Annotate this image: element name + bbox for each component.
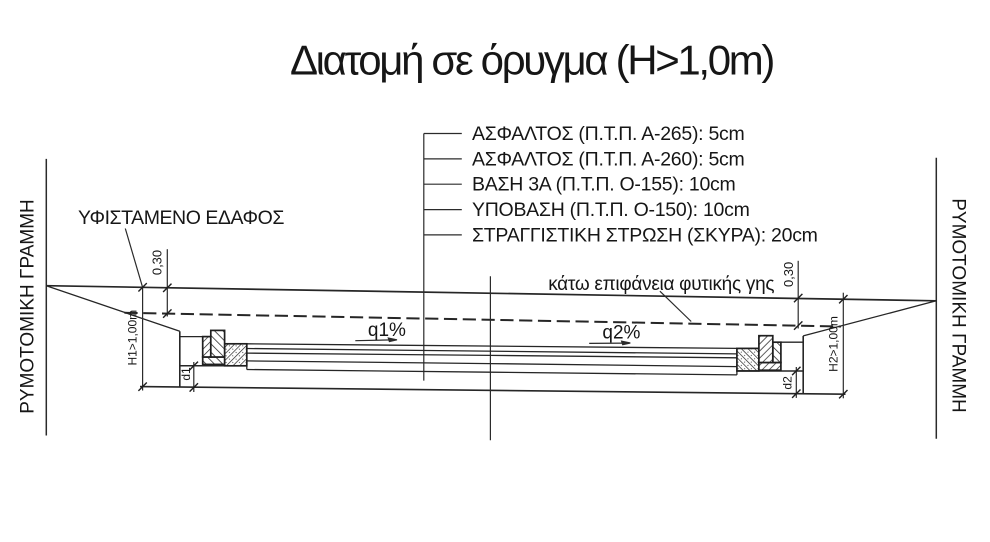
svg-text:ΒΑΣΗ 3Α (Π.Τ.Π. Ο-155): 10cm: ΒΑΣΗ 3Α (Π.Τ.Π. Ο-155): 10cm — [472, 174, 736, 196]
svg-text:ΥΦΙΣΤΑΜΕΝΟ ΕΔΑΦΟΣ: ΥΦΙΣΤΑΜΕΝΟ ΕΔΑΦΟΣ — [78, 207, 284, 229]
svg-text:H2>1,00m: H2>1,00m — [827, 316, 841, 372]
svg-text:ΡΥΜΟΤΟΜΙΚΗ ΓΡΑΜΜΗ: ΡΥΜΟΤΟΜΙΚΗ ΓΡΑΜΜΗ — [948, 198, 969, 413]
svg-text:d1: d1 — [179, 367, 193, 381]
svg-text:κάτω επιφάνεια φυτικής γης: κάτω επιφάνεια φυτικής γης — [548, 274, 774, 295]
svg-text:ΥΠΟΒΑΣΗ (Π.Τ.Π. Ο-150): 10cm: ΥΠΟΒΑΣΗ (Π.Τ.Π. Ο-150): 10cm — [472, 199, 750, 221]
svg-text:0,30: 0,30 — [781, 262, 796, 287]
svg-text:q1%: q1% — [368, 320, 406, 341]
svg-text:ΑΣΦΑΛΤΟΣ (Π.Τ.Π. Α-265): 5cm: ΑΣΦΑΛΤΟΣ (Π.Τ.Π. Α-265): 5cm — [472, 123, 745, 145]
svg-text:ΣΤΡΑΓΓΙΣΤΙΚΗ ΣΤΡΩΣΗ (ΣΚΥΡΑ): 2: ΣΤΡΑΓΓΙΣΤΙΚΗ ΣΤΡΩΣΗ (ΣΚΥΡΑ): 20cm — [472, 224, 818, 246]
svg-text:0,30: 0,30 — [150, 250, 165, 275]
svg-text:ΑΣΦΑΛΤΟΣ (Π.Τ.Π. Α-260): 5cm: ΑΣΦΑΛΤΟΣ (Π.Τ.Π. Α-260): 5cm — [472, 148, 745, 170]
svg-text:q2%: q2% — [602, 323, 640, 344]
svg-text:Διατομή σε όρυγμα (H>1,0m): Διατομή σε όρυγμα (H>1,0m) — [290, 37, 773, 84]
svg-text:H1>1,00m: H1>1,00m — [125, 310, 139, 366]
svg-text:ΡΥΜΟΤΟΜΙΚΗ ΓΡΑΜΜΗ: ΡΥΜΟΤΟΜΙΚΗ ΓΡΑΜΜΗ — [18, 199, 39, 414]
svg-text:d2: d2 — [781, 376, 795, 390]
